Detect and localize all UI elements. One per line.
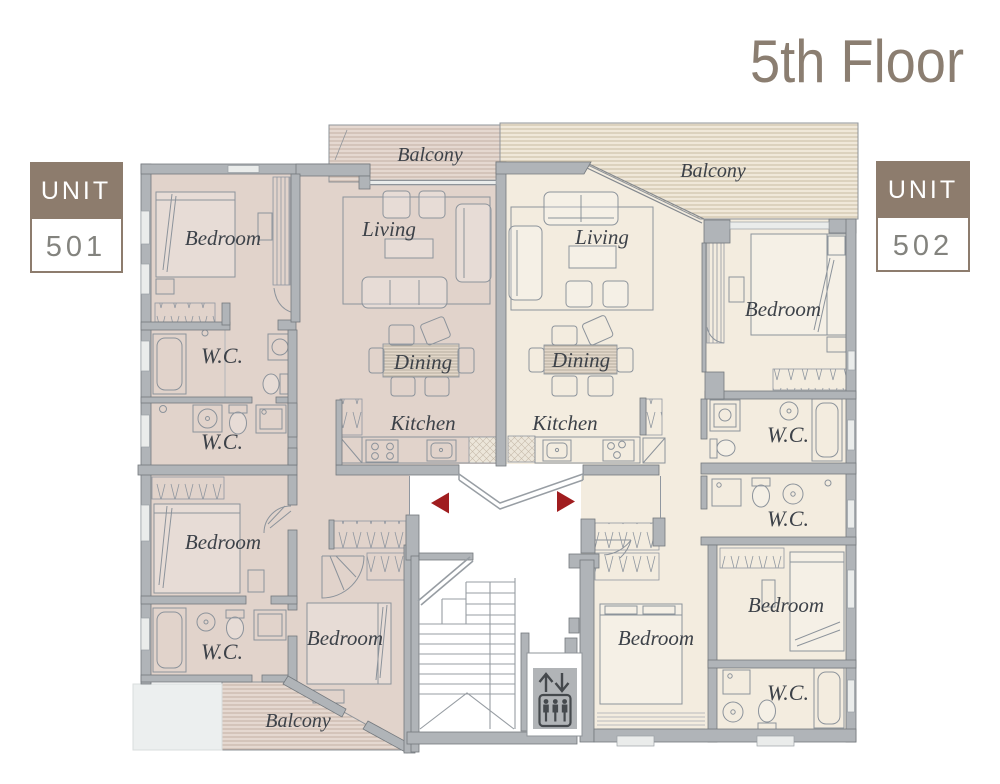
svg-text:Balcony: Balcony xyxy=(680,160,746,182)
svg-text:Living: Living xyxy=(361,217,416,241)
svg-text:Balcony: Balcony xyxy=(265,710,331,732)
svg-text:Kitchen: Kitchen xyxy=(389,411,455,435)
svg-text:W.C.: W.C. xyxy=(767,422,809,447)
svg-text:W.C.: W.C. xyxy=(767,506,809,531)
svg-text:Dining: Dining xyxy=(393,350,452,374)
svg-text:W.C.: W.C. xyxy=(201,639,243,664)
svg-text:Bedroom: Bedroom xyxy=(748,593,824,617)
svg-text:UNIT: UNIT xyxy=(41,177,111,205)
svg-text:Bedroom: Bedroom xyxy=(185,226,261,250)
svg-text:W.C.: W.C. xyxy=(201,343,243,368)
svg-text:W.C.: W.C. xyxy=(201,429,243,454)
svg-text:Dining: Dining xyxy=(551,348,610,372)
svg-text:501: 501 xyxy=(46,231,106,263)
svg-text:5th Floor: 5th Floor xyxy=(750,28,964,95)
svg-text:Kitchen: Kitchen xyxy=(531,411,597,435)
svg-text:502: 502 xyxy=(893,230,953,262)
svg-text:W.C.: W.C. xyxy=(767,680,809,705)
svg-text:Bedroom: Bedroom xyxy=(185,530,261,554)
svg-text:Bedroom: Bedroom xyxy=(618,626,694,650)
svg-text:Living: Living xyxy=(574,225,629,249)
svg-text:Balcony: Balcony xyxy=(397,144,463,166)
svg-text:UNIT: UNIT xyxy=(888,176,958,204)
svg-text:Bedroom: Bedroom xyxy=(307,626,383,650)
svg-text:Bedroom: Bedroom xyxy=(745,297,821,321)
